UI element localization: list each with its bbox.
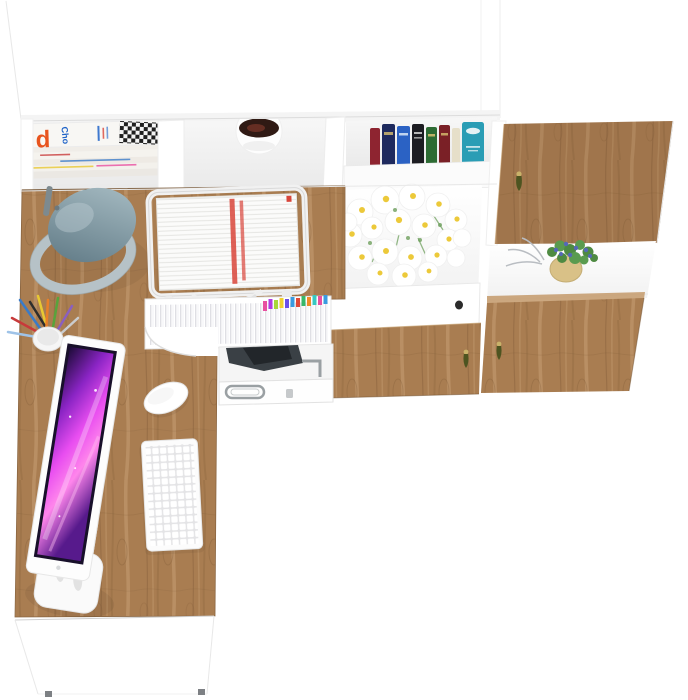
oak-door-top-right	[495, 121, 673, 244]
furniture-render: d Cho	[0, 0, 688, 700]
oak-door-bottom-left	[329, 323, 481, 398]
equipment-bay	[219, 344, 333, 382]
equipment-drawer	[219, 379, 333, 405]
desk-foot-right	[198, 689, 205, 695]
desk-foot-left	[45, 691, 52, 697]
cubby-divider-mid	[323, 117, 345, 194]
oak-door-bottom-right	[481, 298, 644, 393]
magazine-big-letter: d	[35, 126, 50, 153]
drawer-latch	[286, 389, 293, 398]
magazine-checker-art	[119, 121, 160, 145]
keyboard-keys	[145, 444, 198, 546]
hutch-left-wall	[21, 119, 33, 193]
magazine-stack: d Cho	[28, 120, 162, 179]
magazine-title: Cho	[59, 126, 71, 145]
desk-front-panel	[15, 616, 214, 697]
document-stack	[156, 194, 299, 291]
keyboard	[139, 438, 205, 555]
cubby-divider-left	[158, 120, 184, 191]
scene-root: d Cho	[0, 0, 688, 700]
black-knob	[455, 301, 463, 310]
